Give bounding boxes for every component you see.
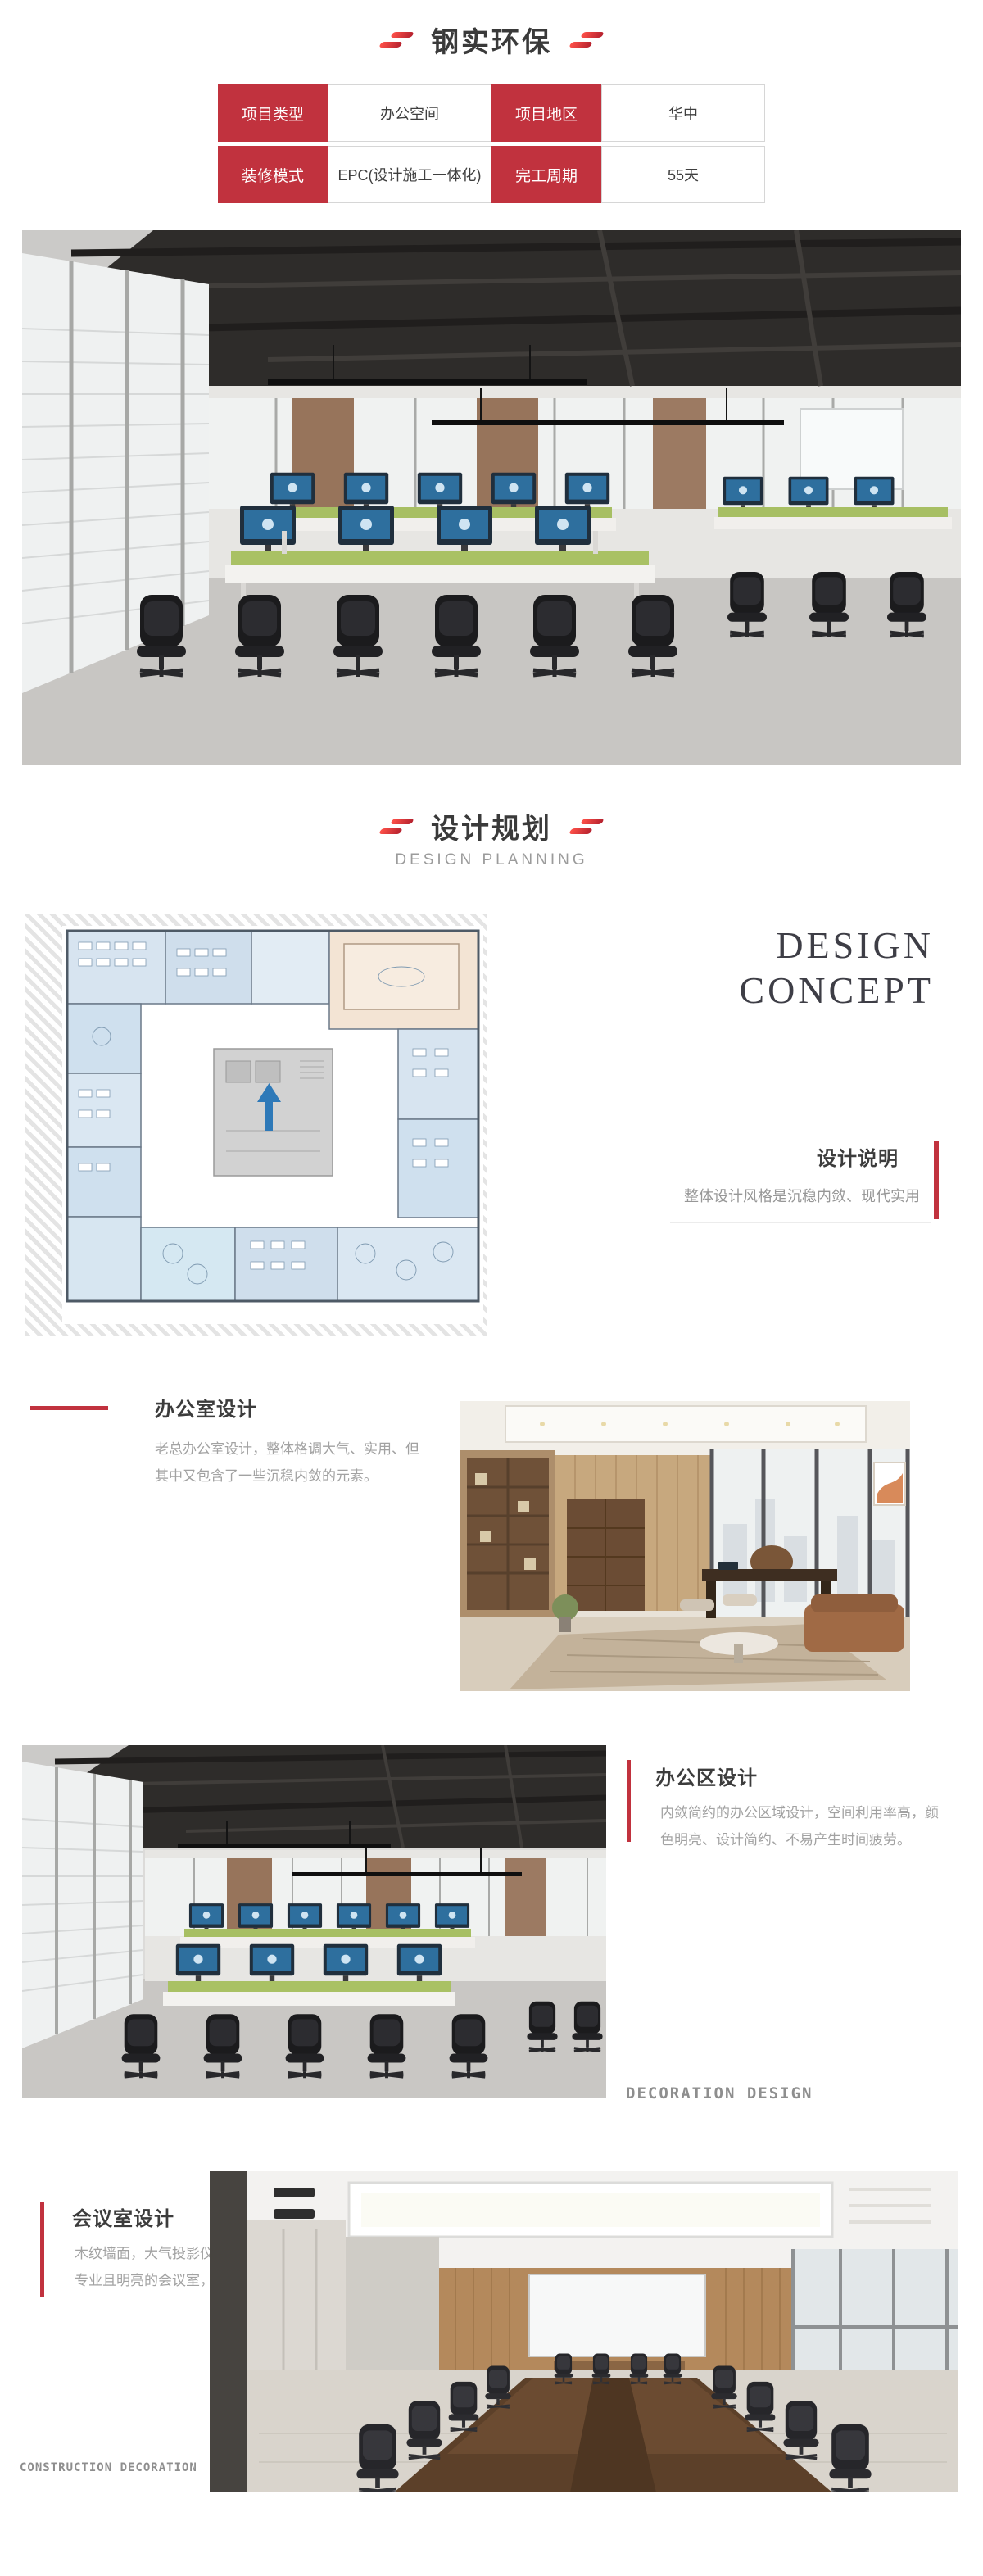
title-accent-left-icon [380,32,413,48]
open-workspace-photo [22,1745,606,2098]
concept-red-bar [934,1141,939,1219]
info-value-mode: EPC(设计施工一体化) [328,146,491,203]
planning-accent-left-icon [380,819,413,834]
meeting-design-red-bar [40,2202,44,2297]
info-value-duration: 55天 [601,146,765,203]
planning-section-title: 设计规划 [431,806,552,846]
concept-description: 整体设计风格是沉稳内敛、现代实用 [576,1185,920,1206]
concept-heading: 设计说明 [571,1142,899,1171]
info-label-region: 项目地区 [491,84,601,142]
planning-accent-right-icon [570,819,603,834]
floorplan-image [62,926,483,1324]
office-design-title: 办公室设计 [155,1393,257,1422]
workspace-design-red-bar [627,1760,631,1842]
hero-office-photo [22,230,961,765]
project-info-table: 项目类型 办公空间 项目地区 华中 装修模式 EPC(设计施工一体化) 完工周期… [218,84,765,203]
open-workspace-illustration [22,1745,606,2098]
title-accent-right-icon [570,32,603,48]
decoration-design-watermark: DECORATION DESIGN [626,2084,813,2102]
workspace-design-title: 办公区设计 [655,1762,758,1790]
meeting-room-photo [210,2171,958,2492]
planning-section-subtitle: DESIGN PLANNING [0,851,983,869]
executive-office-illustration [460,1401,910,1691]
office-design-paragraph: 老总办公室设计，整体格调大气、实用、但 其中又包含了一些沉稳内敛的元素。 [155,1435,443,1490]
workspace-design-paragraph: 内敛简约的办公区域设计，空间利用率高，颜 色明亮、设计简约、不易产生时间疲劳。 [660,1799,967,1853]
info-label-mode: 装修模式 [218,146,328,203]
executive-office-photo [460,1401,910,1691]
concept-divider-line [670,1222,931,1223]
floorplan-illustration [62,926,483,1324]
office-design-line2: 其中又包含了一些沉稳内敛的元素。 [155,1463,443,1490]
planning-section-header: 设计规划 DESIGN PLANNING [0,806,983,869]
info-label-duration: 完工周期 [491,146,601,203]
hero-office-illustration [22,230,961,765]
workspace-design-line1: 内敛简约的办公区域设计，空间利用率高，颜 [660,1799,967,1826]
office-design-line1: 老总办公室设计，整体格调大气、实用、但 [155,1435,443,1463]
office-design-red-line [30,1406,108,1410]
design-concept-wordmark: DESIGN CONCEPT [475,923,934,1013]
page-header: 钢实环保 [0,20,983,59]
concept-word-concept: CONCEPT [475,968,934,1013]
info-value-project-type: 办公空间 [328,84,491,142]
meeting-design-title: 会议室设计 [72,2202,174,2231]
page-title: 钢实环保 [431,20,552,60]
workspace-design-line2: 色明亮、设计简约、不易产生时间疲劳。 [660,1826,967,1853]
construction-decoration-watermark: CONSTRUCTION DECORATION [20,2461,197,2474]
concept-word-design: DESIGN [475,923,934,968]
meeting-room-illustration [210,2171,958,2492]
info-value-region: 华中 [601,84,765,142]
info-label-project-type: 项目类型 [218,84,328,142]
